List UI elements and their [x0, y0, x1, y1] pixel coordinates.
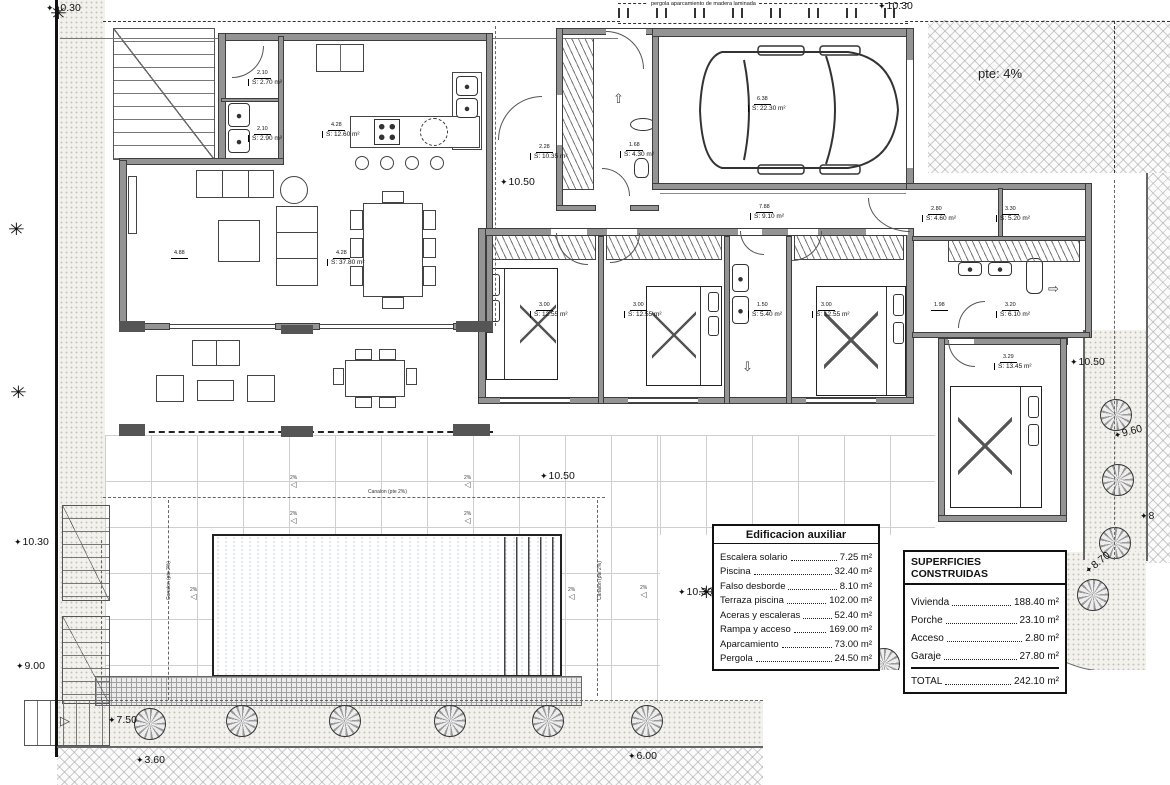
path [700, 52, 898, 168]
row-value: 32.40 m² [835, 566, 873, 577]
sidewalk-inner-edge [95, 700, 763, 701]
dining-chair [350, 266, 363, 286]
wall [486, 33, 493, 333]
entrance-up-arrow-icon: ⇧ [613, 92, 624, 105]
kitchen-sink [456, 76, 478, 96]
pillow [1028, 424, 1039, 446]
rect [758, 165, 804, 174]
window [320, 324, 453, 329]
level-dim-label: ✦9.00 [16, 660, 45, 672]
survey-star-icon: ✦ [678, 587, 686, 597]
survey-star-icon: ✦ [540, 471, 548, 481]
leader-dots [782, 647, 832, 648]
rect [758, 46, 804, 55]
row-value: 73.00 m² [835, 639, 873, 650]
row-label: Garaje [911, 651, 941, 662]
level-dim-label: ✦3.60 [136, 754, 165, 766]
row-label: Piscina [720, 566, 751, 577]
slope-arrow-icon: 2%◁ [464, 512, 471, 525]
plot-boundary-left [55, 0, 58, 757]
pergola-note: pergola aparcamiento de madera laminada [648, 1, 759, 7]
row-value: 27.80 m² [1020, 651, 1059, 662]
blanket-line [886, 287, 887, 395]
tree-icon [631, 705, 663, 737]
leader-dots [794, 632, 826, 633]
room-dim: 6.38 [754, 97, 771, 105]
room-area-label: 4.28S: 37.80 m² [327, 242, 365, 266]
palm-plant-icon: ✳ [8, 222, 25, 239]
sofa [196, 170, 274, 198]
survey-star-icon: ✦ [14, 537, 22, 547]
gutter-dash-v1 [168, 500, 169, 700]
bottom-street [57, 747, 765, 785]
table-row: Pergola24.50 m² [720, 650, 872, 665]
dining-chair [350, 210, 363, 230]
slope-percent: 2% [464, 512, 471, 517]
pillow [1028, 396, 1039, 418]
window [806, 398, 876, 403]
row-label: Terraza piscina [720, 595, 784, 606]
palm-plant-icon: ✳ [10, 385, 27, 402]
room-area-label: 3.00S: 12.55 m² [812, 294, 850, 318]
room-dim: 3.00 [630, 303, 647, 311]
kitchen-island [350, 116, 480, 148]
slope-arrow-icon: 2%◁ [568, 588, 575, 601]
tree-icon [1102, 464, 1134, 496]
room-area-label: 1.98 [925, 294, 948, 311]
right-street-centerline [1114, 180, 1115, 560]
outdoor-chair [355, 397, 372, 408]
driveway-ramp [928, 20, 1170, 173]
room-dim: 2.10 [254, 127, 271, 135]
bathtub [1026, 258, 1043, 294]
floor-plan: pergola aparcamiento de madera laminada … [0, 0, 1170, 785]
room-area-label: 3.20S: 6.10 m² [996, 294, 1030, 318]
table-row: Terraza piscina102.00 m² [720, 592, 872, 607]
row-label: Aceras y escaleras [720, 610, 800, 621]
level-dim-label: ✦10.50 [1070, 356, 1105, 368]
leader-dots [945, 684, 1011, 685]
bar-stool [405, 156, 419, 170]
room-area-label: 1.68S: 4.30 m² [620, 134, 654, 158]
room-dim: 2.28 [536, 145, 553, 153]
outdoor-chair [379, 349, 396, 360]
survey-star-icon: ✦ [628, 751, 636, 761]
porch-column [281, 426, 313, 437]
leader-dots [787, 603, 826, 604]
leader-dots [947, 641, 1022, 642]
table-row: Aparcamiento73.00 m² [720, 635, 872, 650]
window [170, 324, 275, 329]
table-row: Garaje27.80 m² [911, 644, 1059, 662]
wall [724, 236, 730, 404]
wall [652, 28, 659, 190]
bar-stool [355, 156, 369, 170]
slope-percent: 2% [290, 512, 297, 517]
door-arc [498, 96, 542, 140]
bath-fixture [732, 264, 749, 292]
slope-note: pte: 4% [978, 66, 1022, 81]
slope-arrow-icon: 2%◁ [464, 476, 471, 489]
row-label: Pergola [720, 653, 753, 664]
porch-column [453, 424, 490, 436]
room-dim: 3.30 [1002, 207, 1019, 215]
terrace-grid-b [660, 435, 935, 535]
aux-table-title: Edificacion auxiliar [714, 526, 878, 544]
exterior-stair-left-1 [62, 505, 110, 601]
blanket-line [1020, 387, 1021, 507]
survey-star-icon: ✦ [16, 661, 24, 671]
survey-star-icon: ✦ [46, 3, 54, 13]
room-area: S: 5.40 m² [748, 311, 782, 319]
door-arc [740, 231, 764, 255]
slope-percent: 2% [568, 588, 575, 593]
driveway-dash-edge [1114, 21, 1115, 173]
gutter-label: Canalon (pte 2%) [166, 561, 172, 600]
room-area: S: 4.30 m² [620, 151, 654, 159]
outdoor-coffee-table [197, 380, 234, 401]
room-area: S: 4.60 m² [922, 215, 956, 223]
wall [119, 158, 284, 165]
room-dim: 1.50 [754, 303, 771, 311]
slope-arrow-icon: 2%◁ [290, 476, 297, 489]
room-area-label: 2.28S: 10.35 m² [530, 136, 568, 160]
room-area-label: 7.88S: 9.10 m² [750, 196, 784, 220]
room-area-label: 2.10S: 2.90 m² [248, 118, 282, 142]
room-area: S: 2.90 m² [248, 135, 282, 143]
row-value: 188.40 m² [1014, 597, 1059, 608]
side-table [280, 176, 308, 204]
room-dim: 4.88 [171, 251, 188, 259]
bath-fixture [732, 296, 749, 324]
bar-stool [430, 156, 444, 170]
wall [218, 33, 492, 41]
survey-star-icon: ✦ [108, 715, 116, 725]
room-area-label: 6.38S: 22.30 m² [748, 88, 786, 112]
exterior-stair-top-left [113, 28, 215, 160]
room-dim: 4.28 [328, 123, 345, 131]
row-label: Acceso [911, 633, 944, 644]
right-street [1146, 173, 1170, 563]
dining-chair [423, 266, 436, 286]
room-area: S: 12.55 m² [812, 311, 850, 319]
tree-icon [532, 705, 564, 737]
laundry-machine [228, 129, 250, 153]
stove [374, 119, 400, 145]
sofa-cushion-line [277, 232, 317, 233]
wall [221, 98, 279, 102]
room-dim: 3.29 [1000, 355, 1017, 363]
table-row: Vivienda188.40 m² [911, 590, 1059, 608]
sofa-cushion-line [222, 171, 223, 197]
room-area: S: 6.10 m² [996, 311, 1030, 319]
room-area-label: 3.00S: 12.55 m² [530, 294, 568, 318]
survey-star-icon: ✦ [878, 1, 886, 11]
row-value: 23.10 m² [1020, 615, 1059, 626]
double-sink [958, 262, 982, 276]
dining-chair [382, 297, 404, 309]
outdoor-dining-table [345, 360, 405, 397]
porch-column [281, 325, 313, 334]
left-dim-line [101, 540, 102, 700]
tree-icon [134, 708, 166, 740]
bar-stool [380, 156, 394, 170]
table-row: Falso desborde8.10 m² [720, 577, 872, 592]
room-dim: 3.20 [1002, 303, 1019, 311]
room-area-label: 1.50S: 5.40 m² [748, 294, 782, 318]
tree-icon [226, 705, 258, 737]
room-area-label: 4.88 [165, 242, 188, 259]
tv-cabinet [128, 176, 137, 234]
room-area: S: 5.20 m² [996, 215, 1030, 223]
outdoor-chair [406, 368, 417, 385]
gutter-dash-h [103, 497, 605, 498]
level-dim-label: ✦8 [1140, 510, 1154, 522]
wall [906, 228, 914, 404]
room-dim: 1.68 [626, 143, 643, 151]
level-dim-label: ✦10.30 [46, 2, 81, 14]
right-curb-outer [1146, 173, 1148, 561]
blanket-line [504, 269, 505, 379]
porch-column [119, 321, 145, 332]
outdoor-chair [355, 349, 372, 360]
room-area: S: 12.55 m² [624, 311, 662, 319]
leader-dots [803, 618, 831, 619]
outdoor-chair [379, 397, 396, 408]
slope-percent: 2% [290, 476, 297, 481]
room-area: S: 2.70 m² [248, 79, 282, 87]
leader-dots [952, 605, 1011, 606]
laundry-machine [228, 103, 250, 127]
wall [119, 160, 127, 330]
bath-down-arrow-icon: ⇩ [742, 360, 753, 373]
door-arc [868, 198, 910, 232]
level-dim-label: ✦10.50 [540, 470, 575, 482]
wall [556, 205, 596, 211]
car-icon [688, 44, 908, 176]
table-row: Escalera solario7.25 m² [720, 548, 872, 563]
leader-dots [756, 661, 832, 662]
dining-chair [423, 210, 436, 230]
room-dim: 2.10 [254, 71, 271, 79]
exterior-stair-left-2 [62, 616, 110, 704]
row-label: Rampa y acceso [720, 624, 791, 635]
wall [1085, 183, 1092, 338]
door-arc [556, 233, 588, 265]
row-label: Escalera solario [720, 552, 788, 563]
walkin-closet [948, 240, 1080, 262]
built-table-rows: Vivienda188.40 m²Porche23.10 m²Acceso2.8… [905, 585, 1065, 692]
bed-decor [958, 400, 1012, 492]
table-row: Aceras y escaleras52.40 m² [720, 606, 872, 621]
room-area: S: 9.10 m² [750, 213, 784, 221]
bottom-curb [57, 746, 765, 748]
door-arc [602, 168, 630, 196]
slope-arrow-icon: 2%◁ [640, 586, 647, 599]
kitchen-sink [456, 98, 478, 118]
room-area-label: 3.00S: 12.55 m² [624, 294, 662, 318]
wall [938, 515, 1067, 522]
aux-table-rows: Escalera solario7.25 m²Piscina32.40 m²Fa… [714, 544, 878, 669]
room-area: S: 12.60 m² [322, 131, 360, 139]
window [500, 398, 570, 403]
g [700, 46, 898, 174]
porch-column [119, 424, 145, 436]
pillow [893, 322, 904, 344]
sofa [276, 206, 318, 286]
room-dim: 7.88 [756, 205, 773, 213]
roof-edge-dash [495, 26, 496, 326]
dining-chair [382, 191, 404, 203]
boundary-top-dash-2 [905, 21, 1170, 22]
wall [912, 236, 1086, 241]
outdoor-armchair [156, 375, 184, 402]
corridor-glazing [660, 193, 906, 194]
pillow [708, 292, 719, 312]
room-area-label: 2.10S: 2.70 m² [248, 62, 282, 86]
garage-door-opening [907, 60, 913, 168]
porch-column [456, 321, 493, 332]
gutter-label: Canalon (pte 2%) [597, 561, 603, 600]
door-arc [958, 301, 985, 328]
oven-appliance [420, 118, 448, 146]
pergola-dash-bottom [618, 23, 908, 24]
room-area-label: 4.28S: 12.60 m² [322, 114, 360, 138]
gutter-label: Canalon (pte 2%) [368, 489, 407, 495]
room-dim: 3.00 [536, 303, 553, 311]
survey-star-icon: ✦ [136, 755, 144, 765]
table-row: TOTAL242.10 m² [911, 667, 1059, 687]
leader-dots [754, 574, 832, 575]
room-area: S: 12.55 m² [530, 311, 568, 319]
slope-arrow-icon: 2%◁ [290, 512, 297, 525]
room-area-label: 3.30S: 5.20 m² [996, 198, 1030, 222]
row-label: TOTAL [911, 676, 942, 687]
slope-percent: 2% [464, 476, 471, 481]
loveseat-line [216, 341, 217, 365]
level-dim-label: ✦10.30 [678, 586, 713, 598]
table-row: Acceso2.80 m² [911, 626, 1059, 644]
hall-wardrobe [562, 38, 594, 190]
row-value: 242.10 m² [1014, 676, 1059, 687]
wall [478, 228, 486, 404]
survey-star-icon: ✦ [1113, 429, 1123, 441]
sofa-cushion-line [277, 258, 317, 259]
door-arc [606, 31, 644, 69]
row-value: 2.80 m² [1025, 633, 1059, 644]
leader-dots [946, 623, 1017, 624]
table-row: Porche23.10 m² [911, 608, 1059, 626]
path [826, 56, 835, 164]
room-dim: 2.80 [928, 207, 945, 215]
wall [652, 28, 914, 37]
wall [938, 338, 945, 522]
row-label: Vivienda [911, 597, 949, 608]
row-value: 8.10 m² [840, 581, 872, 592]
room-dim: 3.00 [818, 303, 835, 311]
row-value: 102.00 m² [829, 595, 872, 606]
leader-dots [788, 589, 836, 590]
tree-icon [329, 705, 361, 737]
outdoor-chair [333, 368, 344, 385]
cabinet-divider [340, 44, 341, 72]
level-dim-label: ✦10.50 [500, 176, 535, 188]
wall [652, 183, 914, 190]
room-area: S: 37.80 m² [327, 259, 365, 267]
slope-percent: 2% [190, 588, 197, 593]
wall [786, 236, 792, 404]
coffee-table [218, 220, 260, 262]
survey-star-icon: ✦ [1070, 357, 1078, 367]
room-area: S: 22.30 m² [748, 105, 786, 113]
level-dim-label: ✦7.50 [108, 714, 137, 726]
closet-right-arrow-icon: ⇨ [1048, 282, 1059, 295]
slope-arrow-icon: 2%◁ [190, 588, 197, 601]
dining-table [363, 203, 423, 297]
row-value: 24.50 m² [835, 653, 873, 664]
dining-chair [423, 238, 436, 258]
pillow [708, 316, 719, 336]
room-dim: 4.28 [333, 251, 350, 259]
tree-icon [1077, 579, 1109, 611]
table-row: Rampa y acceso169.00 m² [720, 621, 872, 636]
row-label: Porche [911, 615, 943, 626]
level-dim-label: ✦10.30 [878, 0, 913, 12]
tree-icon [434, 705, 466, 737]
level-dim-label: ✦10.30 [14, 536, 49, 548]
row-value: 52.40 m² [835, 610, 873, 621]
room-area-label: 2.80S: 4.60 m² [922, 198, 956, 222]
stair-right-arrow-icon: ▷ [60, 714, 70, 727]
leader-dots [944, 659, 1017, 660]
pool-steps [504, 537, 562, 675]
level-dim-label: ✦6.00 [628, 750, 657, 762]
room-area: S: 10.35 m² [530, 153, 568, 161]
slope-percent: 2% [640, 586, 647, 591]
row-value: 7.25 m² [840, 552, 872, 563]
outdoor-armchair [247, 375, 275, 402]
wall [630, 205, 659, 211]
toilet [634, 158, 649, 178]
room-area: S: 13.45 m² [994, 363, 1032, 371]
table-row: Piscina32.40 m² [720, 563, 872, 578]
wall [478, 228, 914, 236]
door-arc [948, 340, 975, 367]
double-sink [988, 262, 1012, 276]
edificacion-auxiliar-table: Edificacion auxiliar Escalera solario7.2… [712, 524, 880, 671]
room-area-label: 3.29S: 13.45 m² [994, 346, 1032, 370]
boundary-top-dash-1 [103, 21, 620, 22]
survey-star-icon: ✦ [1140, 511, 1148, 521]
blanket-line [700, 287, 701, 385]
row-value: 169.00 m² [829, 624, 872, 635]
wall [1060, 338, 1067, 522]
pillow [893, 294, 904, 316]
leader-dots [791, 560, 837, 561]
superficies-construidas-table: SUPERFICIES CONSTRUIDAS Vivienda188.40 m… [903, 550, 1067, 694]
wall [598, 236, 604, 404]
pergola-posts [618, 8, 908, 18]
row-label: Aparcamiento [720, 639, 779, 650]
window [628, 398, 698, 403]
sofa-cushion-line [248, 171, 249, 197]
room-dim: 1.98 [931, 303, 948, 311]
survey-star-icon: ✦ [500, 177, 508, 187]
row-label: Falso desborde [720, 581, 785, 592]
built-table-title: SUPERFICIES CONSTRUIDAS [905, 552, 1065, 585]
